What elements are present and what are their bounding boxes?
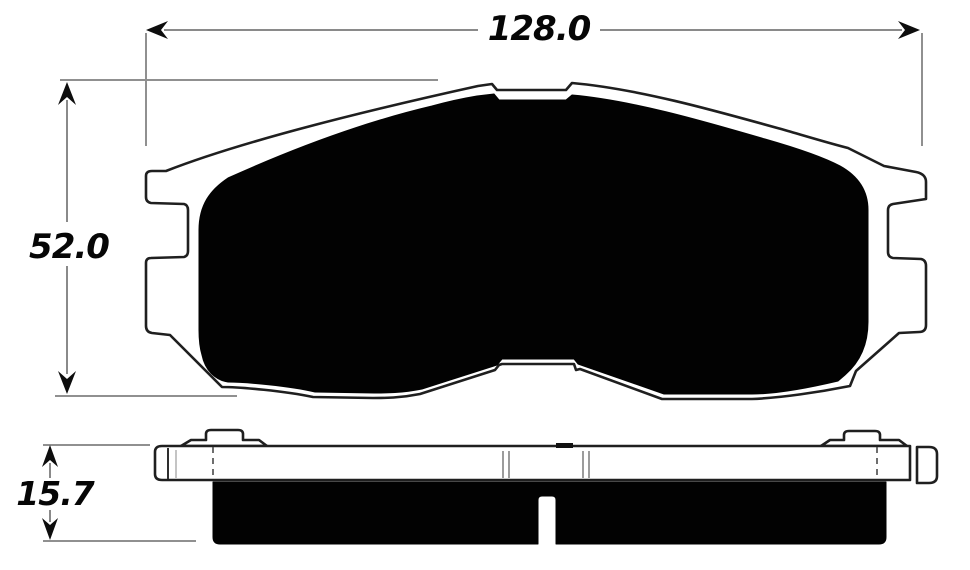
front-view [146, 83, 926, 399]
brake-pad-dimensional-drawing: 128.0 52.0 15.7 [0, 0, 970, 570]
friction-material-edge [213, 482, 886, 544]
plate-right-end-cap [917, 447, 937, 483]
left-clip [181, 430, 267, 446]
right-clip [821, 431, 907, 446]
width-dimension-label: 128.0 [488, 9, 591, 49]
height-dimension-label: 52.0 [29, 227, 109, 267]
side-view [155, 430, 937, 544]
backing-plate-edge [155, 446, 910, 480]
thickness-dimension-label: 15.7 [16, 474, 94, 513]
arrow-down-icon [58, 371, 76, 394]
diagram-canvas: 128.0 52.0 15.7 [0, 0, 970, 570]
plate-top-edge-mark [556, 443, 573, 448]
